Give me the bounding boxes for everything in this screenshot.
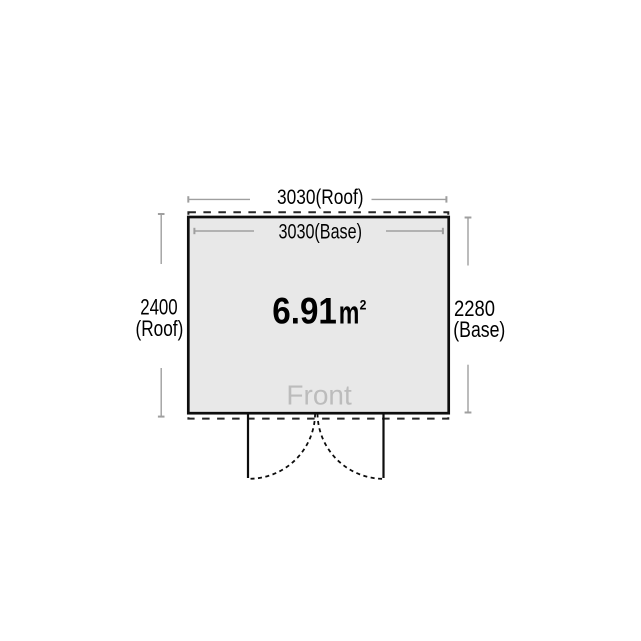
svg-text:(Roof): (Roof) bbox=[136, 316, 184, 341]
svg-text:(Base): (Base) bbox=[453, 317, 505, 342]
svg-text:6.91: 6.91 bbox=[272, 290, 337, 331]
svg-text:m: m bbox=[339, 294, 360, 330]
svg-text:Front: Front bbox=[286, 380, 352, 411]
svg-text:2: 2 bbox=[360, 296, 367, 312]
svg-text:3030(Base): 3030(Base) bbox=[279, 221, 363, 244]
svg-text:3030(Roof): 3030(Roof) bbox=[277, 186, 364, 209]
